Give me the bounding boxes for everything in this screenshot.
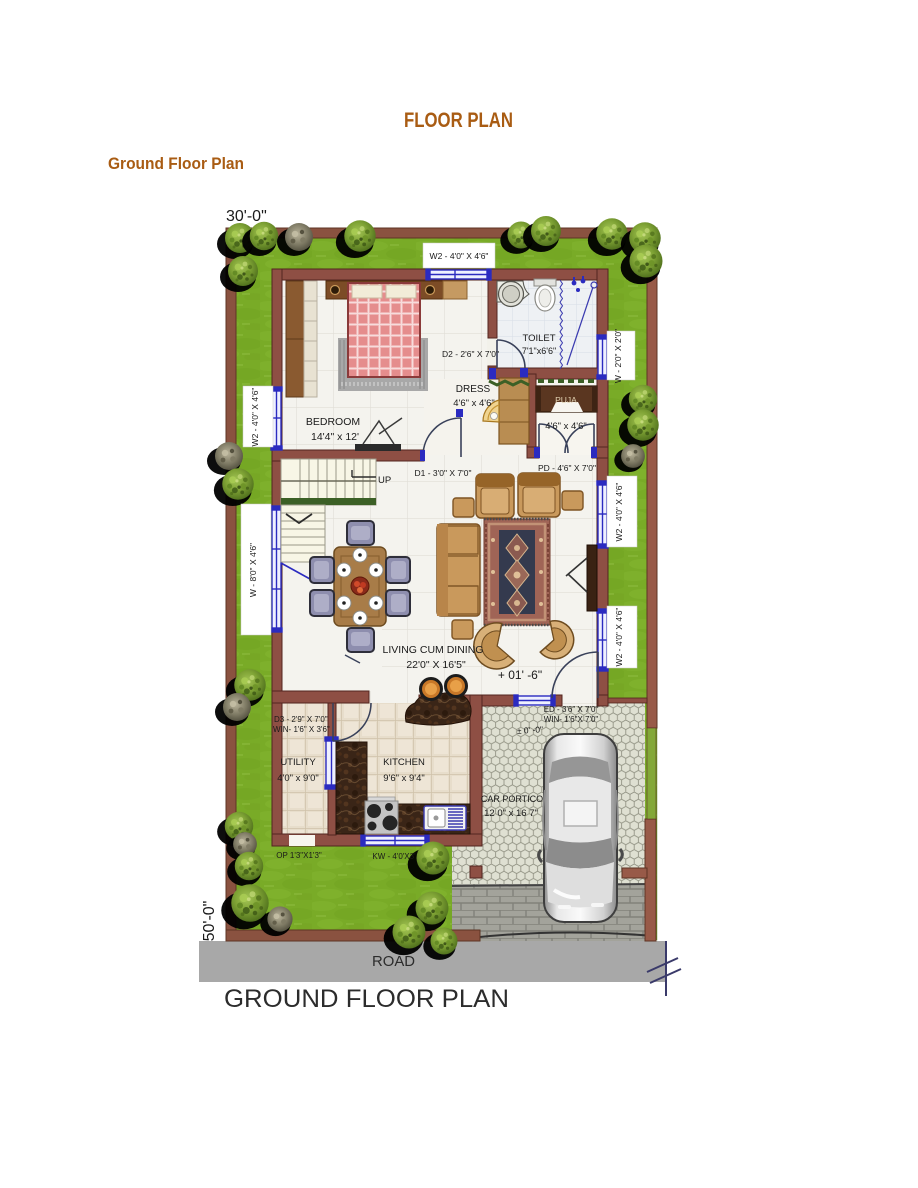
svg-text:50'-0": 50'-0" bbox=[201, 901, 218, 942]
svg-text:CAR PORTICO: CAR PORTICO bbox=[481, 794, 543, 804]
svg-text:GROUND FLOOR PLAN: GROUND FLOOR PLAN bbox=[224, 985, 509, 1013]
svg-text:14'4" x 12': 14'4" x 12' bbox=[311, 431, 359, 443]
svg-text:PD - 4'6" X 7'0": PD - 4'6" X 7'0" bbox=[538, 463, 596, 473]
svg-text:DRESS: DRESS bbox=[456, 384, 491, 395]
svg-text:D3 - 2'9" X 7'0": D3 - 2'9" X 7'0" bbox=[274, 715, 328, 724]
svg-text:FLOOR PLAN: FLOOR PLAN bbox=[404, 108, 513, 132]
svg-text:ROAD: ROAD bbox=[372, 953, 415, 970]
svg-text:D2 - 2'6" X 7'0": D2 - 2'6" X 7'0" bbox=[442, 349, 499, 359]
svg-text:+ 01' -6": + 01' -6" bbox=[498, 668, 542, 682]
svg-text:7'1"x6'6": 7'1"x6'6" bbox=[522, 346, 556, 356]
svg-text:W - 2'0" X 2'0": W - 2'0" X 2'0" bbox=[613, 329, 623, 383]
svg-text:UP: UP bbox=[378, 475, 391, 486]
svg-text:22'0" X 16'5": 22'0" X 16'5" bbox=[406, 659, 466, 671]
svg-text:Ground Floor Plan: Ground Floor Plan bbox=[108, 154, 244, 173]
svg-text:KW - 4'0'X3': KW - 4'0'X3' bbox=[372, 852, 416, 861]
svg-text:W2 - 4'0" X 4'6": W2 - 4'0" X 4'6" bbox=[430, 251, 489, 261]
svg-text:BEDROOM: BEDROOM bbox=[306, 416, 360, 428]
svg-text:PUJA: PUJA bbox=[555, 395, 577, 405]
svg-text:30'-0": 30'-0" bbox=[226, 208, 267, 225]
svg-text:W - 8'0" X 4'6": W - 8'0" X 4'6" bbox=[248, 543, 258, 597]
svg-text:ED - 3'6" X 7'0": ED - 3'6" X 7'0" bbox=[544, 705, 599, 714]
svg-text:4'6" x 4'6": 4'6" x 4'6" bbox=[545, 421, 587, 432]
svg-text:OP 1'3"X1'3": OP 1'3"X1'3" bbox=[276, 851, 322, 860]
svg-text:WIN- 1'6" X 3'6": WIN- 1'6" X 3'6" bbox=[273, 725, 330, 734]
svg-text:D1 - 3'0" X 7'0": D1 - 3'0" X 7'0" bbox=[414, 468, 471, 478]
svg-text:W2 - 4'0" X 4'6": W2 - 4'0" X 4'6" bbox=[614, 483, 624, 542]
svg-text:TOILET: TOILET bbox=[522, 333, 555, 344]
svg-text:LIVING CUM DINING: LIVING CUM DINING bbox=[383, 644, 484, 656]
svg-text:4'6" x 4'6": 4'6" x 4'6" bbox=[453, 398, 495, 409]
svg-text:KITCHEN: KITCHEN bbox=[383, 757, 425, 768]
svg-text:9'6" x 9'4": 9'6" x 9'4" bbox=[383, 773, 425, 784]
svg-text:± 0' -0": ± 0' -0" bbox=[516, 724, 543, 736]
svg-text:4'0" x 9'0": 4'0" x 9'0" bbox=[277, 773, 319, 784]
svg-text:W2 - 4'0" X 4'6": W2 - 4'0" X 4'6" bbox=[250, 388, 260, 447]
svg-text:W2 - 4'0" X 4'6": W2 - 4'0" X 4'6" bbox=[614, 608, 624, 667]
svg-text:UTILITY: UTILITY bbox=[280, 757, 316, 768]
svg-text:WIN- 1'6"X 7'0": WIN- 1'6"X 7'0" bbox=[544, 715, 599, 724]
svg-text:12 0" x 16 7": 12 0" x 16 7" bbox=[484, 808, 538, 819]
